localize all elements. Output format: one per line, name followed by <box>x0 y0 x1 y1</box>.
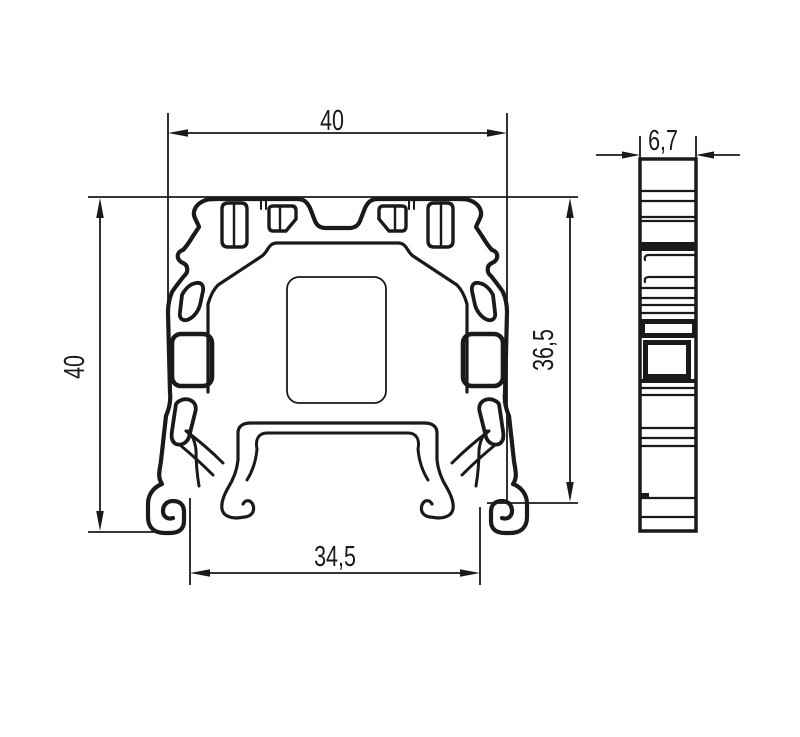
dim-label-foot-width-group: 34,5 <box>314 541 356 573</box>
front-top-slots <box>222 199 453 247</box>
dim-label-foot-width: 34,5 <box>314 541 356 573</box>
side-screw-window <box>646 343 689 377</box>
dim-label-top-width: 40 <box>320 105 344 137</box>
technical-drawing-page: 40 40 36,5 34,5 6,7 <box>0 0 800 737</box>
dim-label-right-height: 36,5 <box>528 329 560 371</box>
front-outer-profile <box>148 199 527 533</box>
front-center-window <box>287 277 386 403</box>
dim-label-side-width: 6,7 <box>648 125 678 157</box>
front-channel-inner-line <box>247 433 428 480</box>
dim-label-top-width-group: 40 <box>320 105 344 137</box>
front-view <box>148 199 527 533</box>
technical-drawing-canvas: 40 40 36,5 34,5 6,7 <box>0 0 800 737</box>
dim-label-left-height-group: 40 <box>59 355 91 379</box>
side-band-stripe <box>645 324 692 333</box>
front-inner-cavity <box>208 243 467 392</box>
dim-label-side-width-group: 6,7 <box>648 125 678 157</box>
dim-label-left-height: 40 <box>59 355 91 379</box>
side-view <box>640 159 696 531</box>
front-rail-channel <box>222 423 453 518</box>
front-side-holes <box>172 283 504 445</box>
dim-label-right-height-group: 36,5 <box>528 329 560 371</box>
